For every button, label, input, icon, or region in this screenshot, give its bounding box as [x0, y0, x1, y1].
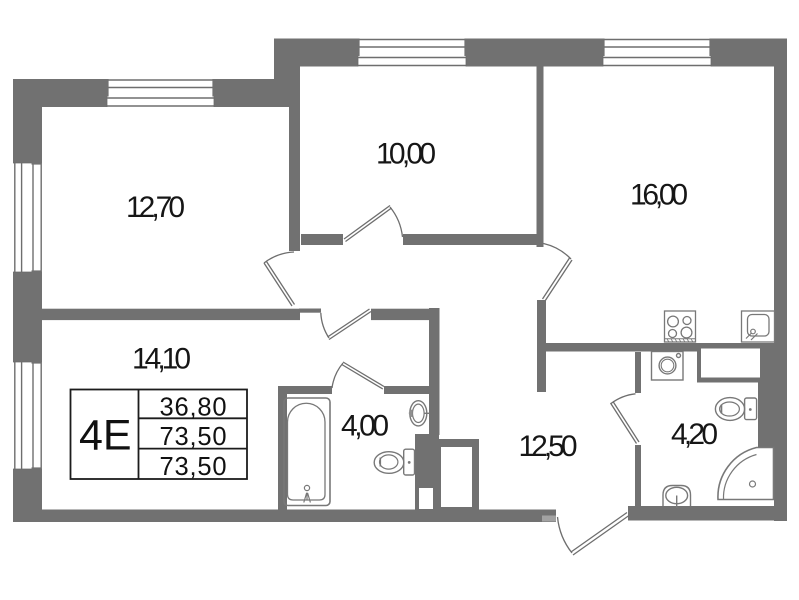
- svg-text:4,20: 4,20: [671, 418, 718, 451]
- svg-text:4,00: 4,00: [341, 410, 389, 443]
- svg-text:4E: 4E: [79, 412, 132, 460]
- svg-text:12,50: 12,50: [519, 430, 578, 463]
- svg-text:14,10: 14,10: [132, 343, 191, 376]
- svg-text:16,00: 16,00: [630, 179, 688, 212]
- svg-text:10,00: 10,00: [376, 138, 436, 171]
- svg-text:36,80: 36,80: [160, 394, 227, 422]
- svg-text:73,50: 73,50: [160, 423, 227, 451]
- svg-text:12,70: 12,70: [126, 191, 185, 224]
- svg-text:73,50: 73,50: [160, 453, 227, 481]
